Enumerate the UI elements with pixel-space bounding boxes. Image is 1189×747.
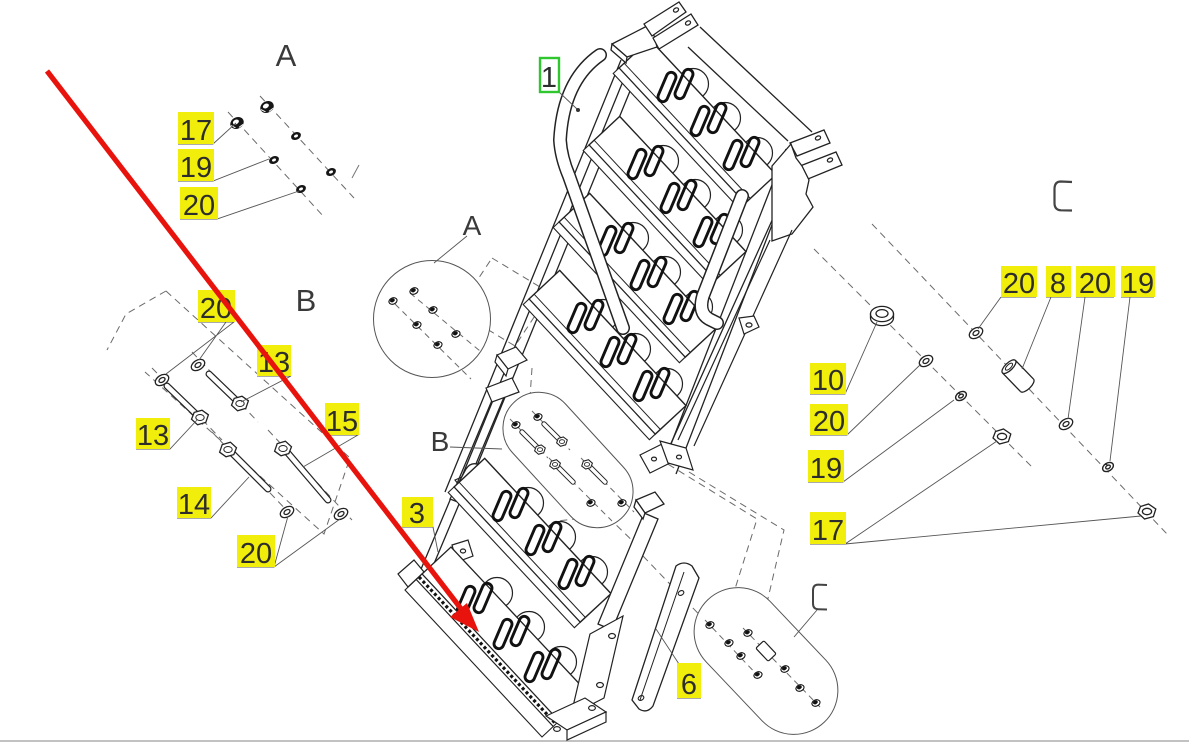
svg-text:6: 6 xyxy=(681,669,697,701)
svg-text:A: A xyxy=(463,210,482,241)
svg-text:20: 20 xyxy=(1003,268,1035,300)
svg-text:13: 13 xyxy=(137,420,169,452)
svg-text:19: 19 xyxy=(180,152,212,184)
svg-text:19: 19 xyxy=(1122,268,1154,300)
svg-text:20: 20 xyxy=(240,538,272,570)
svg-text:3: 3 xyxy=(409,498,425,530)
svg-text:14: 14 xyxy=(178,489,210,521)
svg-text:20: 20 xyxy=(183,190,215,222)
svg-text:A: A xyxy=(276,38,297,73)
svg-text:B: B xyxy=(431,426,450,457)
svg-text:B: B xyxy=(296,283,317,318)
svg-text:20: 20 xyxy=(1079,268,1111,300)
svg-text:19: 19 xyxy=(810,453,842,485)
svg-text:20: 20 xyxy=(813,406,845,438)
svg-text:17: 17 xyxy=(180,115,212,147)
svg-text:8: 8 xyxy=(1050,268,1066,300)
svg-text:15: 15 xyxy=(326,406,358,438)
svg-text:17: 17 xyxy=(812,515,844,547)
svg-text:10: 10 xyxy=(812,365,844,397)
svg-text:1: 1 xyxy=(541,62,557,94)
